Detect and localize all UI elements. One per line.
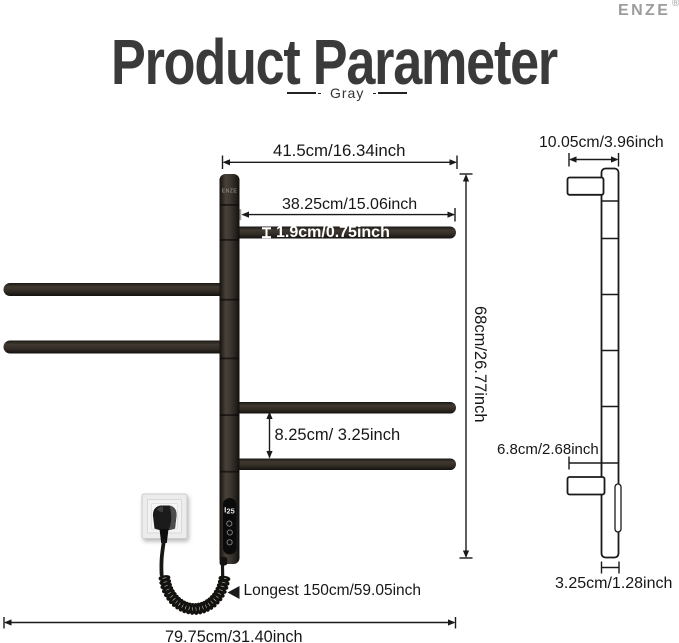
svg-text:ENZE: ENZE <box>222 189 238 195</box>
svg-text:25: 25 <box>226 506 234 515</box>
